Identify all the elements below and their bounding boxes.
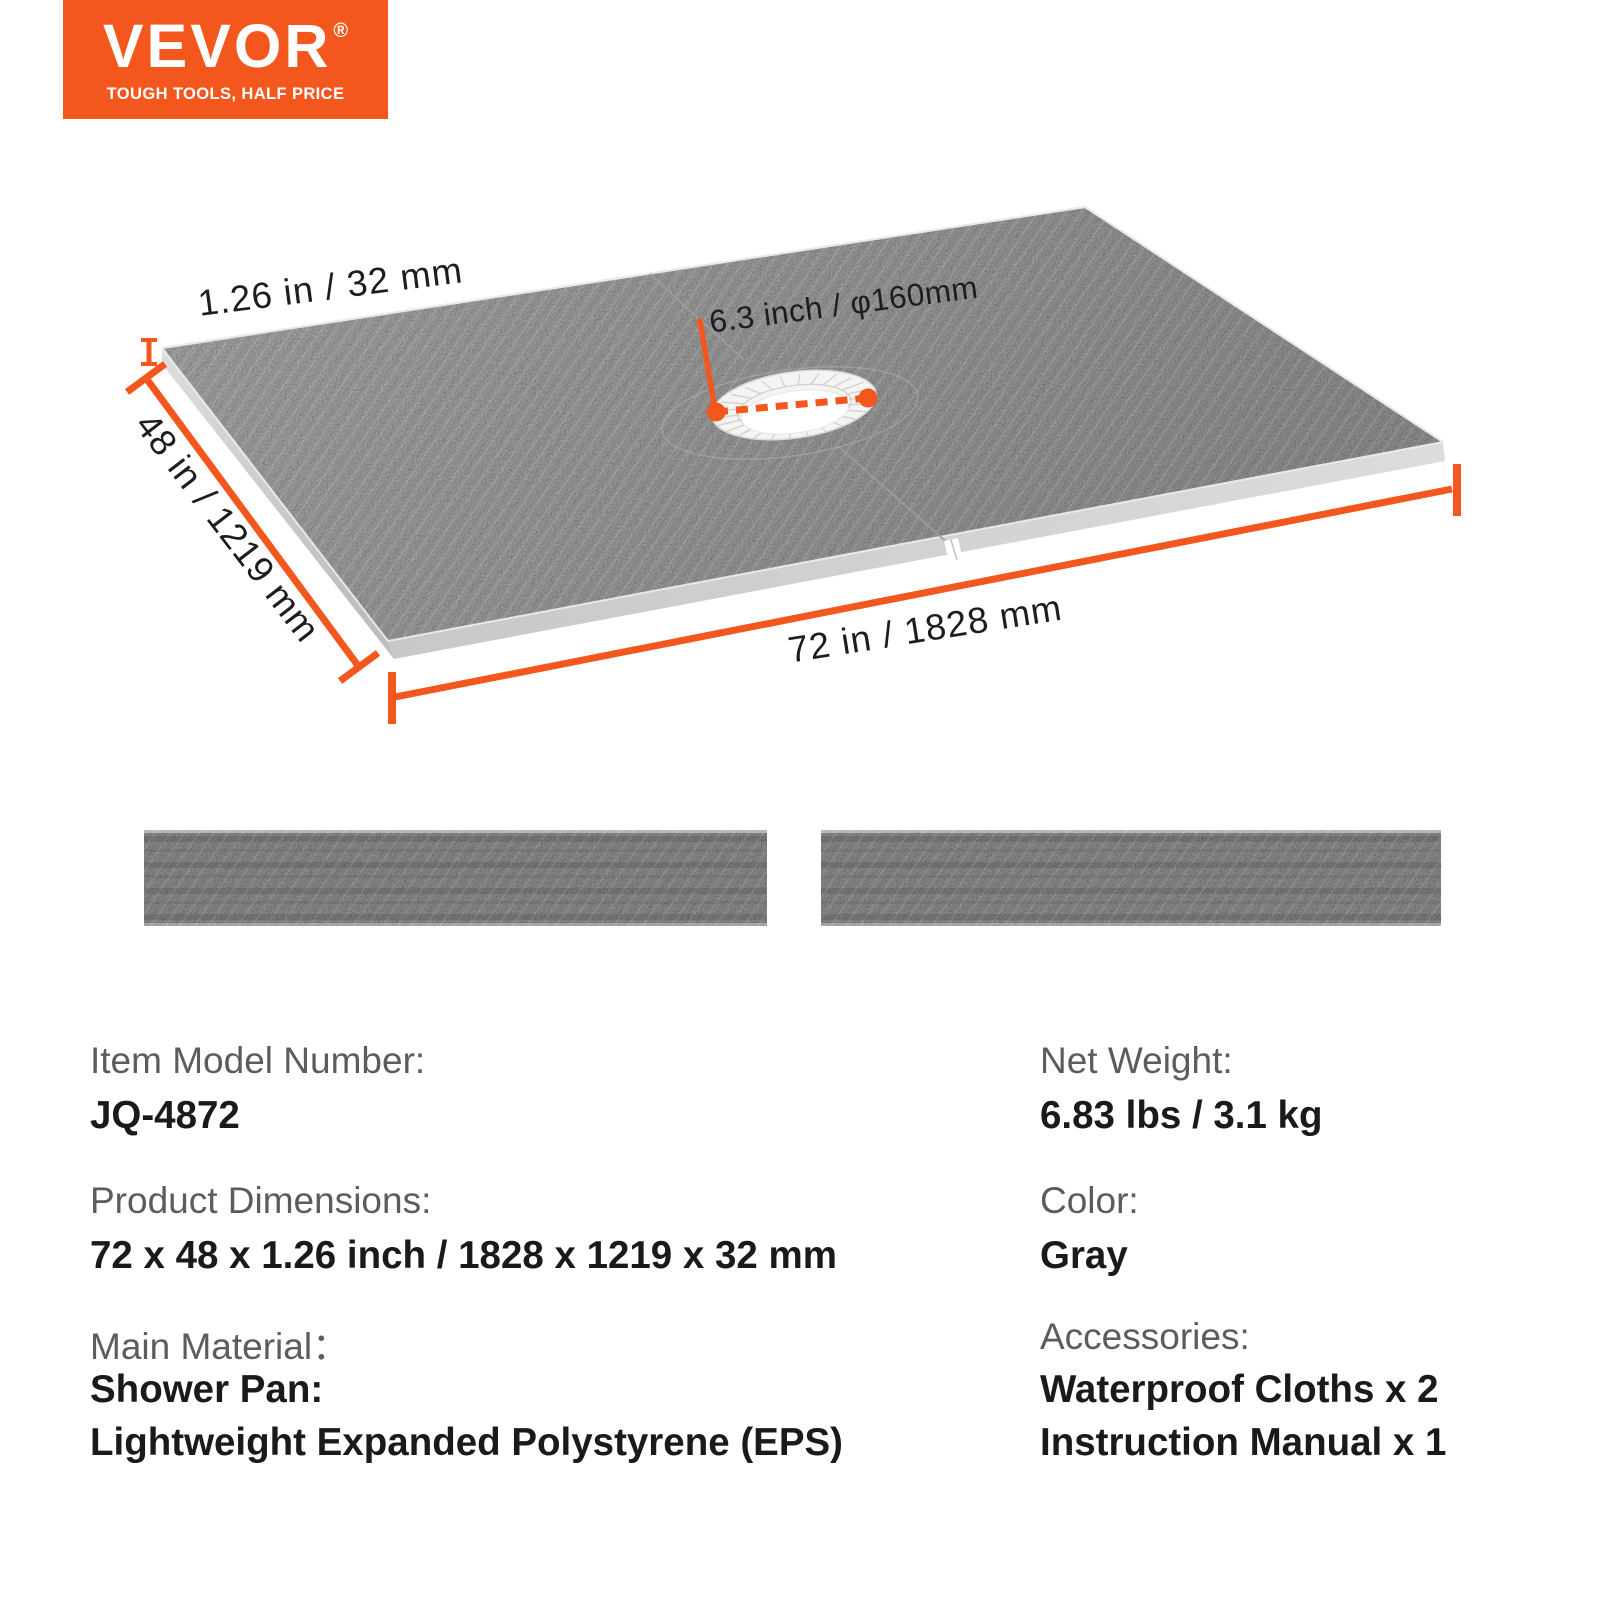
spec-value-weight: 6.83 lbs / 3.1 kg [1040,1094,1323,1138]
curb-strip-left [144,830,767,926]
spec-value-dimensions: 72 x 48 x 1.26 inch / 1828 x 1219 x 32 m… [90,1234,837,1278]
spec-label-material: Main Material： [90,1316,349,1370]
spec-value-accessory-2: Instruction Manual x 1 [1040,1421,1446,1465]
spec-value-model: JQ-4872 [90,1094,240,1138]
spec-label-dimensions: Product Dimensions: [90,1180,431,1222]
spec-label-color: Color: [1040,1180,1139,1222]
spec-value-accessory-1: Waterproof Cloths x 2 [1040,1368,1439,1412]
spec-value-material-1: Shower Pan: [90,1368,323,1412]
spec-label-model: Item Model Number: [90,1040,425,1082]
spec-value-material-2: Lightweight Expanded Polystyrene (EPS) [90,1421,843,1465]
length-label: 72 in / 1828 mm [785,587,1065,671]
curb-strip-right [821,830,1441,926]
thickness-dimension-marker [141,340,157,364]
product-infographic: VEVOR® TOUGH TOOLS, HALF PRICE [0,0,1600,1600]
spec-value-color: Gray [1040,1234,1128,1278]
spec-label-weight: Net Weight: [1040,1040,1233,1082]
spec-label-accessories: Accessories: [1040,1316,1250,1358]
